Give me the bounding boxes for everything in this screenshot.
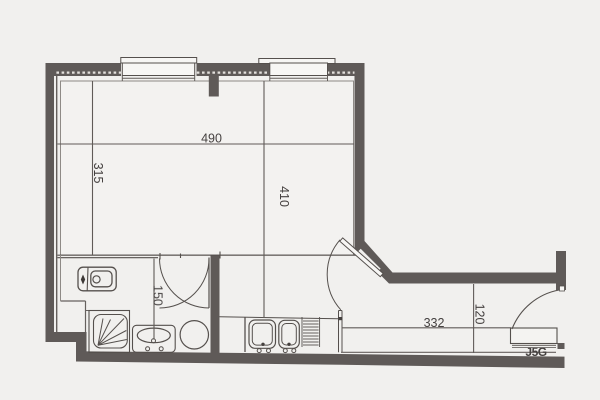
svg-text:332: 332 <box>424 316 445 330</box>
svg-text:120: 120 <box>473 304 487 325</box>
svg-text:315: 315 <box>91 163 105 184</box>
svg-text:150: 150 <box>151 285 165 306</box>
svg-text:410: 410 <box>277 186 291 207</box>
svg-text:J5G: J5G <box>525 345 546 359</box>
svg-text:490: 490 <box>201 131 222 145</box>
